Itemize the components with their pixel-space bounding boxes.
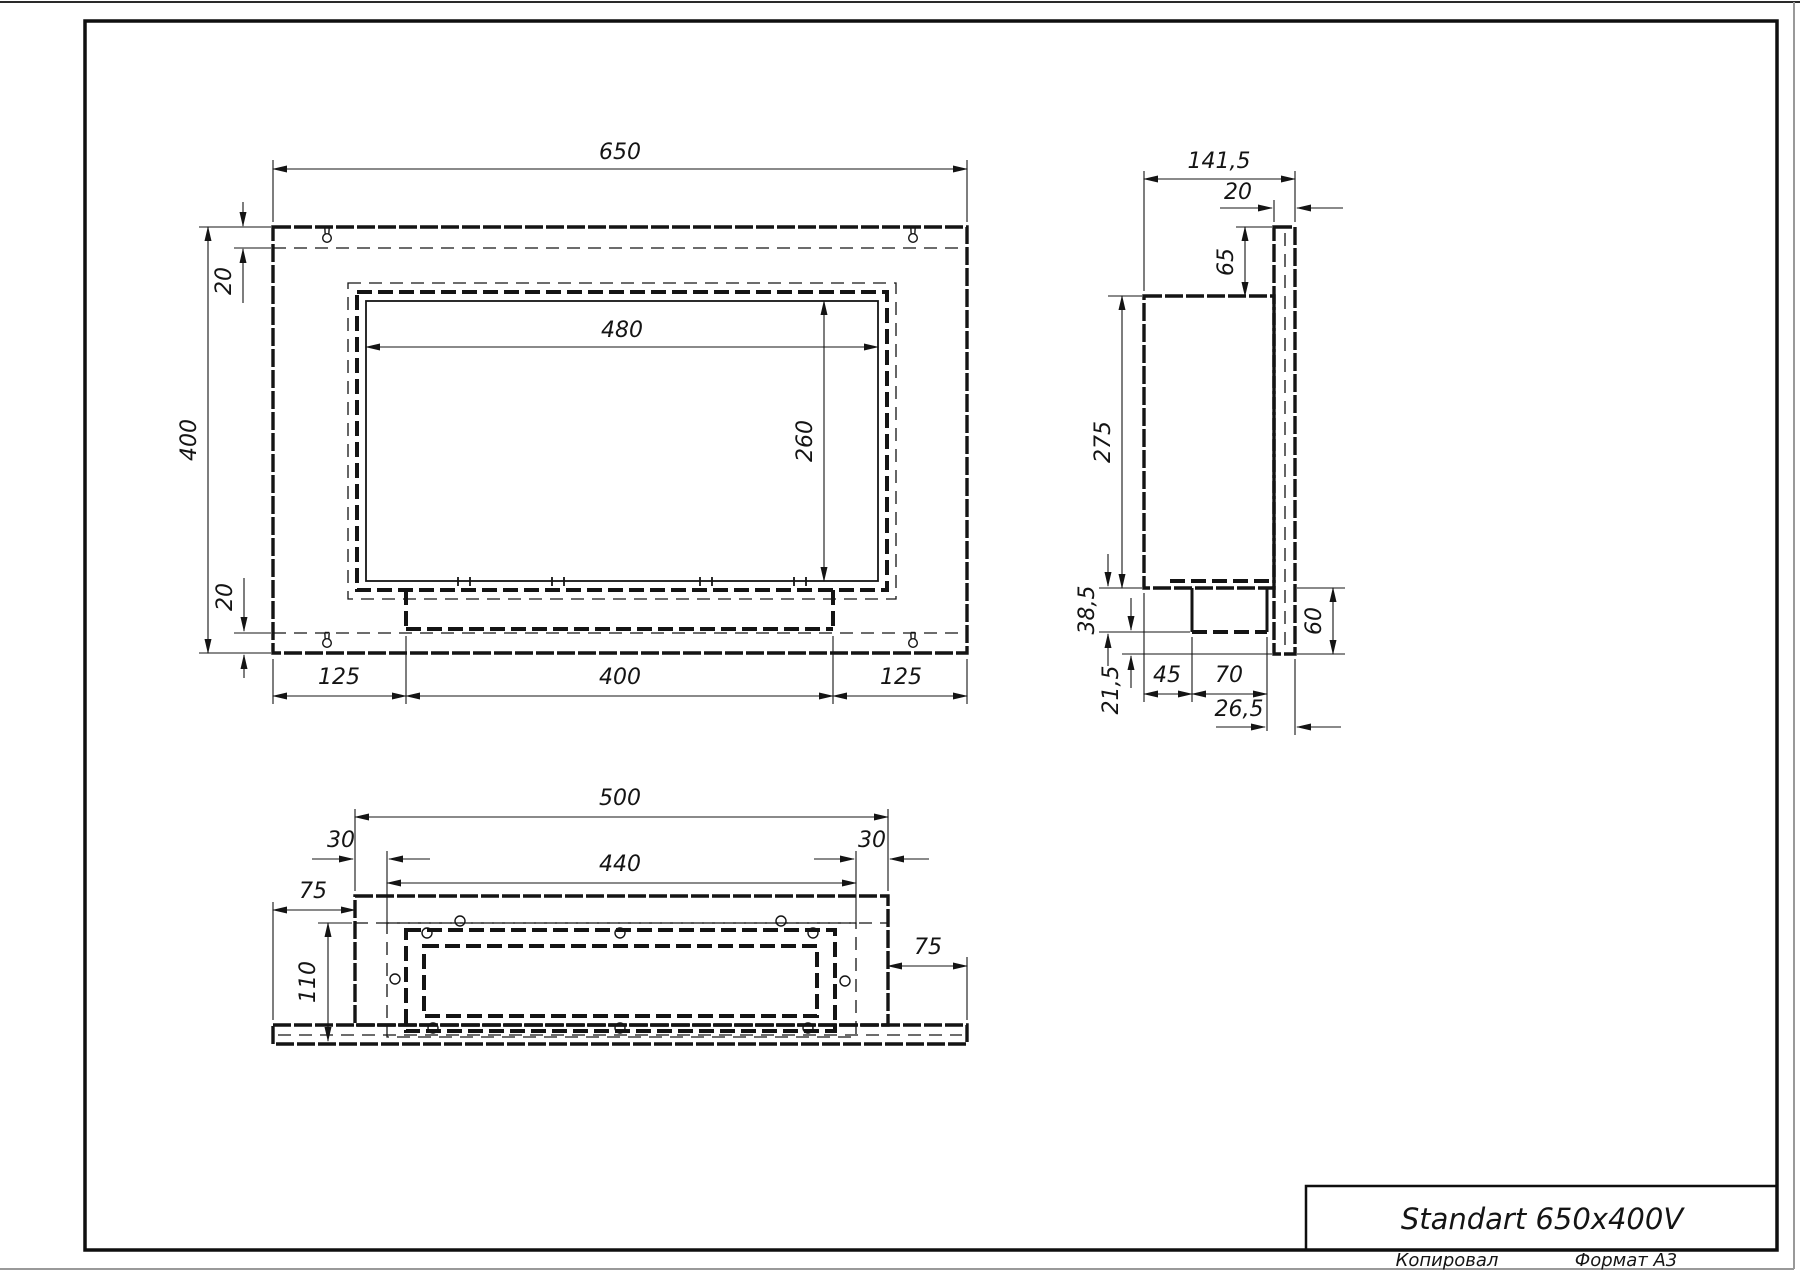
dim-bottom-plate-margin-right: 75	[914, 935, 942, 960]
side-view: 141,5 20 65 275 38,5 21,5 45 70 26,5 60	[1075, 149, 1345, 735]
dim-side-depth: 141,5	[1188, 149, 1251, 174]
dim-side-burner-width: 70	[1215, 663, 1243, 688]
drawing-sheet: 650 400 20 20 480 260 125 400 125	[0, 0, 1800, 1273]
dim-bottom-body-width: 500	[599, 786, 641, 811]
dim-bottom-rail-margin-right: 30	[858, 828, 886, 853]
dim-side-top-offset: 65	[1214, 248, 1239, 276]
dim-opening-width: 480	[601, 318, 643, 343]
keyhole-mount-icon	[323, 228, 332, 243]
drawing-frame	[0, 2, 1800, 1269]
technical-drawing: 650 400 20 20 480 260 125 400 125	[0, 0, 1800, 1273]
dim-side-bottom-flange: 60	[1302, 607, 1327, 635]
keyhole-mount-icon	[909, 633, 918, 648]
dim-front-burner-width: 400	[599, 665, 641, 690]
dim-bottom-cavity-depth: 110	[296, 961, 321, 1003]
dim-side-body-height: 275	[1091, 421, 1116, 463]
dim-front-off-left: 125	[318, 665, 360, 690]
keyhole-mount-icon	[909, 228, 918, 243]
title-block: Standart 650x400V Копировал Формат А3	[1306, 1186, 1777, 1271]
keyhole-mount-icon	[323, 633, 332, 648]
dim-bottom-rail-margin-left: 30	[327, 828, 355, 853]
dim-bottom-rail-width: 440	[599, 852, 641, 877]
dim-front-margin-top: 20	[212, 267, 237, 295]
front-view-dimensions	[199, 160, 967, 704]
dim-side-plate: 20	[1224, 180, 1252, 205]
bottom-view: 500 30 30 440 75 75 110	[273, 786, 967, 1044]
dim-front-off-right: 125	[880, 665, 922, 690]
format-label: Формат А3	[1575, 1250, 1678, 1271]
front-view: 650 400 20 20 480 260 125 400 125	[177, 140, 967, 704]
dim-side-burner-right: 26,5	[1215, 697, 1264, 722]
dim-opening-height: 260	[793, 420, 818, 462]
drawing-title: Standart 650x400V	[1401, 1202, 1685, 1236]
copied-label: Копировал	[1396, 1250, 1499, 1271]
dim-front-margin-bottom: 20	[213, 583, 238, 611]
dim-side-tray-depth: 38,5	[1075, 586, 1100, 635]
dim-bottom-plate-margin-left: 75	[299, 879, 327, 904]
dim-side-burner-left: 45	[1153, 663, 1181, 688]
dim-front-height: 400	[177, 419, 202, 461]
dim-side-below-offset: 21,5	[1099, 666, 1124, 715]
dim-front-width: 650	[599, 140, 641, 165]
